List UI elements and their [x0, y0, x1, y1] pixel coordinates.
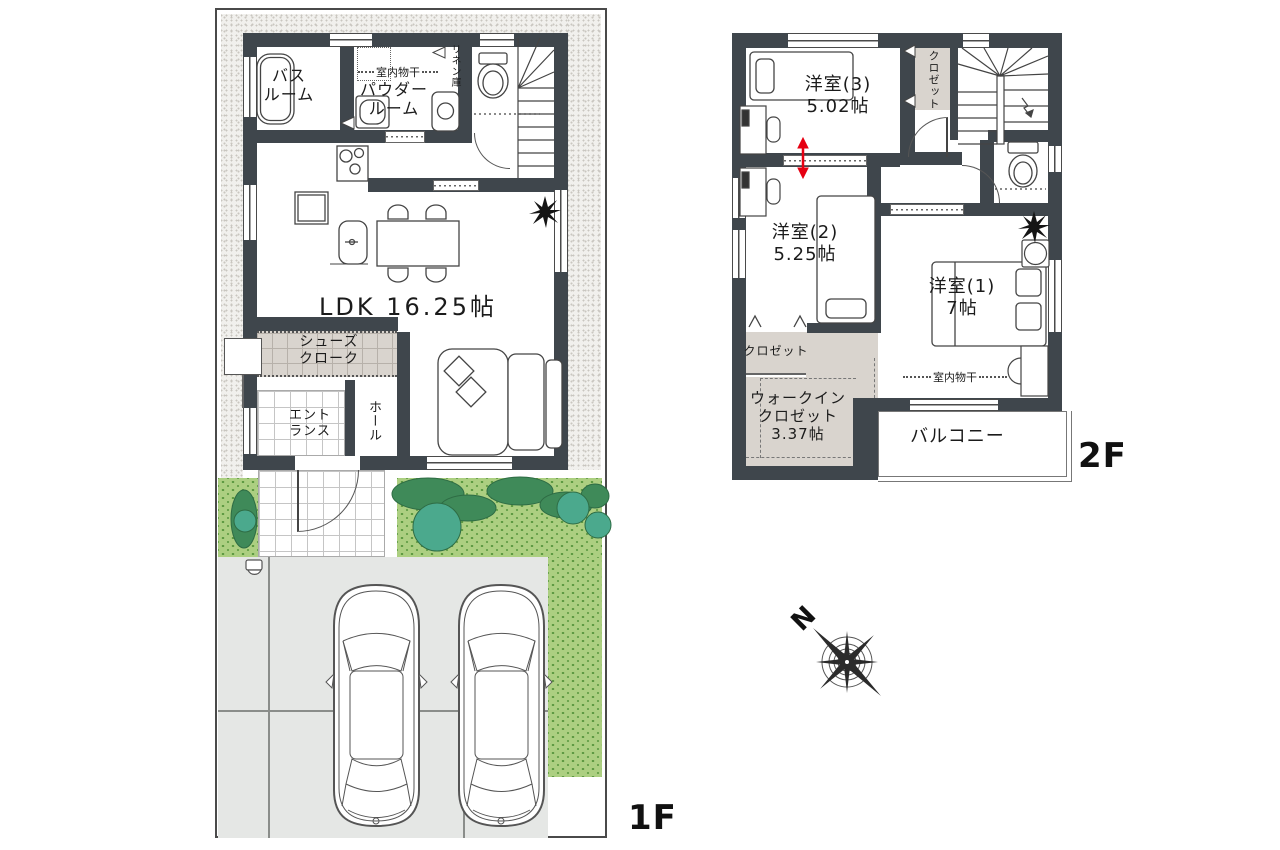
wall: [807, 323, 867, 333]
window: [243, 408, 257, 454]
window: [480, 33, 514, 47]
site-texture-top: [221, 14, 601, 34]
sliding-door: [385, 131, 425, 143]
balcony-window: [910, 399, 998, 411]
window: [427, 456, 512, 470]
balcony-label: バルコニー: [900, 426, 1015, 448]
garden-right: [548, 557, 602, 777]
sliding-partition: [783, 155, 867, 166]
wall: [243, 33, 568, 47]
wall: [1048, 33, 1062, 410]
wall: [732, 33, 1062, 48]
entrance-label: エント ランス: [270, 408, 350, 439]
window: [732, 230, 746, 278]
site-texture-right: [568, 14, 601, 470]
hall-label: ホール: [364, 400, 383, 442]
floor-label-2f: 2F: [1078, 436, 1127, 476]
driveway-joint: [268, 557, 270, 838]
floor-plan-canvas: N バス ルーム パウダー ルーム 室内物干 リネン庫 LDK 16.25帖 シ…: [0, 0, 1280, 850]
desk-room3-icon: [740, 106, 780, 154]
wic-dash: [874, 358, 875, 398]
wall: [988, 130, 1062, 142]
closet-side-label: クロゼット: [741, 344, 811, 358]
room3-label: 洋室(3) 5.02帖: [778, 74, 898, 117]
closet-line: [746, 373, 807, 375]
closet-top-label: クロゼット: [925, 50, 941, 110]
room2-label: 洋室(2) 5.25帖: [745, 222, 865, 265]
sliding-door: [890, 204, 964, 215]
compass-rose-icon: N: [786, 601, 885, 700]
linen-closet-label: リネン庫: [447, 44, 462, 88]
sliding-door: [433, 180, 479, 191]
bathroom-label: バス ルーム: [252, 66, 326, 104]
utility-line: [242, 375, 244, 408]
wall: [243, 130, 470, 143]
desk-room1-icon: [1008, 346, 1048, 396]
garden-front: [397, 478, 602, 557]
stool-icon: [1022, 240, 1049, 267]
ldk-label: LDK 16.25帖: [300, 293, 516, 322]
wic-dash: [760, 378, 856, 379]
room1-label: 洋室(1) 7帖: [902, 276, 1022, 319]
compass-north-label: N: [786, 601, 823, 638]
window: [732, 178, 746, 218]
toilet-2f-icon: [990, 142, 1046, 189]
wall: [950, 47, 958, 140]
wall: [243, 456, 295, 470]
window: [330, 33, 372, 47]
window: [1048, 146, 1062, 172]
site-texture-left: [221, 14, 243, 478]
window: [788, 33, 878, 48]
outdoor-unit: [224, 338, 262, 375]
window: [554, 190, 568, 272]
indoor-drying-label-1f: 室内物干: [358, 64, 438, 80]
driveway-joint: [463, 710, 465, 838]
window: [963, 33, 989, 48]
folding-door-marks: [749, 316, 806, 327]
toilet2f-door-swing: [962, 165, 1000, 203]
wic-dash: [746, 457, 856, 458]
driveway-joint: [218, 710, 548, 712]
floor-label-1f: 1F: [628, 798, 677, 838]
powder-room-label: パウダー ルーム: [352, 80, 436, 118]
walkin-closet-label: ウォークイン クロゼット 3.37帖: [738, 389, 858, 443]
window: [243, 185, 257, 240]
window: [1048, 260, 1062, 332]
wall-hall-divider: [397, 332, 410, 470]
wall: [980, 203, 1062, 216]
desk-room2-icon: [740, 168, 780, 216]
indoor-drying-label-2f: 室内物干: [903, 369, 1007, 385]
wall: [867, 153, 881, 333]
fixtures-overlay: N: [0, 0, 1280, 850]
shoes-closet-label: シューズ クローク: [270, 334, 388, 368]
